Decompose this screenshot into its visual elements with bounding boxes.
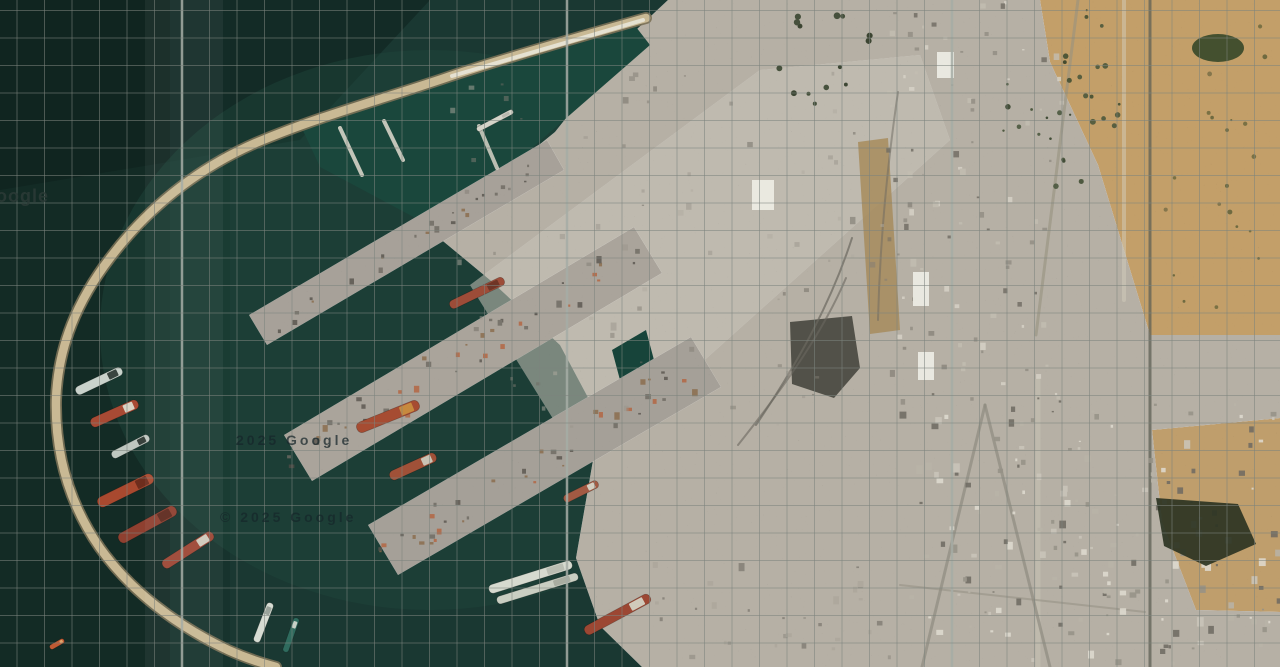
terminal-clutter-block [804, 288, 809, 292]
trees-terminal-dot [844, 83, 848, 87]
terminal-clutter-block [586, 263, 591, 267]
city-blocks-mid-block [953, 151, 959, 157]
watermark-2025-google: 2025 Google [236, 432, 352, 448]
trees-dirt-dot [1235, 225, 1238, 228]
trees-terminal-dot [807, 92, 811, 96]
pier-b-clutter-block [323, 425, 328, 432]
terminal-clutter-block [747, 142, 753, 147]
city-blocks-bottom-block [1040, 551, 1046, 558]
pier-b-clutter-block [635, 249, 640, 254]
pier-a-clutter-block [312, 301, 314, 303]
terminal-clutter-block [480, 316, 483, 320]
city-blocks-bottom-block [1171, 662, 1174, 666]
city-blocks-mid-block [960, 169, 966, 175]
pier-c-clutter-block [640, 379, 645, 384]
terminal-clutter-block [903, 347, 907, 350]
city-blocks-bottom-block [1111, 425, 1113, 428]
trees-top-dot [1115, 112, 1121, 118]
terminal-clutter-block [508, 188, 511, 190]
pier-a-clutter-block [451, 221, 456, 224]
terminal-clutter-block [642, 189, 645, 192]
city-blocks-bottom-block [1075, 552, 1079, 556]
trees-top-dot [1005, 104, 1010, 109]
city-blocks-bottom-block [1188, 412, 1193, 416]
trees-top-dot [1017, 125, 1022, 130]
city-blocks-mid-block [944, 286, 949, 292]
pier-a-clutter-block [524, 181, 526, 183]
city-blocks-bottom-block [1068, 631, 1074, 635]
terminal-clutter-block [730, 406, 736, 410]
terminal-clutter-block [684, 75, 686, 77]
terminal-clutter-south-block [832, 647, 835, 650]
city-blocks-bottom-block [971, 554, 977, 558]
city-blocks-bottom-block [1197, 617, 1204, 626]
trees-top-dot [1112, 123, 1117, 128]
city-blocks-bottom-block [1031, 418, 1035, 422]
city-blocks-bottom-block [1052, 577, 1057, 580]
terminal-clutter-block [624, 406, 629, 411]
pier-c-clutter-block [429, 514, 434, 518]
trees-dirt-dot [1243, 122, 1247, 126]
pier-c-clutter-block [661, 371, 665, 373]
city-blocks-bottom-block [1216, 564, 1218, 566]
terminal-clutter-block [778, 299, 780, 301]
terminal-clutter-block [642, 205, 644, 206]
pier-a-clutter-block [452, 212, 454, 214]
city-blocks-mid-block [971, 141, 973, 143]
terminal-clutter-block [623, 97, 629, 103]
trees-top-dot [1030, 108, 1033, 111]
trees-terminal-dot [840, 14, 845, 19]
city-blocks-mid-block [980, 3, 986, 8]
trees-top-dot [1063, 60, 1067, 64]
terminal-clutter-block [458, 260, 462, 266]
trees-terminal-dot [776, 65, 782, 71]
pier-c-clutter-block [525, 475, 528, 477]
city-blocks-bottom-block [965, 483, 971, 488]
terminal-clutter-block [610, 333, 614, 338]
city-blocks-bottom-block [1108, 562, 1113, 568]
terminal-clutter-block [570, 425, 573, 427]
terminal-clutter-block [642, 287, 647, 291]
terminal-clutter-block [596, 224, 600, 230]
terminal-clutter-block [851, 254, 855, 257]
city-blocks-mid-block [970, 397, 973, 401]
pier-b-clutter-block [465, 344, 467, 346]
city-blocks-bottom-block [1259, 440, 1263, 443]
city-blocks-mid-block [1030, 240, 1034, 244]
terminal-clutter-south-block [782, 617, 785, 619]
terminal-clutter-south-block [859, 598, 863, 600]
terminal-clutter-block [928, 331, 934, 336]
city-blocks-bottom-block [1165, 579, 1169, 583]
city-blocks-mid-block [1045, 365, 1048, 367]
city-blocks-bottom-block [1169, 645, 1171, 648]
city-blocks-mid-block [1022, 325, 1024, 328]
city-blocks-bottom-block [1059, 521, 1066, 529]
trees-dirt-dot [1227, 210, 1232, 215]
city-blocks-bottom-block [1103, 572, 1108, 577]
terminal-clutter-block [469, 86, 475, 90]
city-blocks-bottom-block [1165, 599, 1168, 602]
city-blocks-mid-block [1041, 57, 1046, 62]
city-blocks-bottom-block [1160, 649, 1165, 654]
terminal-clutter-block [802, 170, 805, 173]
trees-top-dot [1049, 137, 1052, 140]
city-blocks-bottom-block [1007, 542, 1013, 550]
city-blocks-bottom-block [1015, 458, 1017, 461]
pier-c-clutter-block [456, 500, 461, 505]
city-blocks-bottom-block [936, 630, 943, 635]
satellite-map-view[interactable]: oogle2025 Google© 2025 Google [0, 0, 1280, 667]
city-blocks-bottom-block [963, 577, 967, 581]
pier-a-clutter-block [465, 213, 469, 217]
pier-a-clutter-block [495, 193, 498, 196]
city-blocks-bottom-block [1250, 617, 1252, 619]
city-blocks-bottom-block [1237, 614, 1240, 617]
city-blocks-mid-block [948, 235, 951, 238]
pier-c-clutter-block [491, 479, 495, 482]
terminal-clutter-block [832, 72, 835, 76]
pier-b-clutter-block [524, 326, 528, 329]
pier-b-clutter-block [596, 256, 601, 263]
terminal-clutter-block [778, 364, 782, 367]
terminal-clutter-block [647, 100, 649, 103]
city-blocks-bottom-block [1268, 621, 1270, 623]
city-blocks-bottom-block [1173, 561, 1179, 569]
city-blocks-mid-block [915, 71, 918, 74]
terminal-clutter-block [794, 242, 799, 247]
city-blocks-bottom-block [1208, 626, 1214, 634]
terminal-clutter-block [474, 327, 479, 331]
trees-top-dot [1067, 78, 1072, 83]
city-blocks-bottom-block [953, 463, 960, 472]
city-blocks-bottom-block [1200, 585, 1206, 592]
pier-a-clutter-block [501, 185, 505, 189]
city-blocks-bottom-block [990, 630, 993, 632]
pier-c-clutter-block [413, 535, 416, 539]
city-blocks-bottom-block [969, 626, 971, 628]
city-blocks-bottom-block [1271, 412, 1277, 417]
building-white-1 [913, 272, 929, 306]
city-blocks-mid-block [1041, 322, 1046, 328]
city-blocks-mid-block [908, 32, 913, 37]
city-blocks-bottom-block [941, 542, 945, 547]
city-blocks-bottom-block [1275, 550, 1280, 557]
pier-b-clutter-block [489, 319, 492, 321]
terminal-clutter-block [553, 371, 557, 375]
city-blocks-bottom-block [1054, 546, 1057, 550]
city-blocks-mid-block [915, 47, 920, 50]
pier-c-clutter-block [562, 465, 564, 467]
pier-b-clutter-block [562, 282, 564, 284]
city-blocks-bottom-block [916, 465, 922, 474]
trees-dirt-dot [1252, 154, 1257, 159]
city-blocks-mid-block [1001, 382, 1006, 385]
city-blocks-mid-block [1006, 260, 1012, 264]
city-blocks-mid-block [1056, 396, 1060, 399]
city-blocks-mid-block [1017, 302, 1021, 307]
pier-c-clutter-block [467, 516, 469, 519]
city-blocks-mid-block [904, 224, 908, 230]
city-blocks-bottom-block [988, 612, 991, 615]
trees-top-dot [1079, 179, 1084, 184]
terminal-clutter-block [884, 279, 887, 281]
pier-c-clutter-block [599, 412, 603, 418]
trees-top-dot [1046, 117, 1049, 120]
terminal-clutter-south-block [662, 597, 664, 599]
pier-a-clutter-block [461, 209, 465, 212]
terminal-clutter-block [828, 260, 830, 262]
city-blocks-bottom-block [937, 478, 944, 483]
city-blocks-mid-block [960, 51, 963, 53]
terminal-clutter-south-block [707, 581, 713, 586]
city-blocks-bottom-block [931, 424, 938, 430]
terminal-clutter-block [471, 158, 476, 162]
city-blocks-bottom-block [996, 608, 1002, 613]
city-blocks-bottom-block [1037, 474, 1042, 480]
terminal-clutter-south-block [660, 617, 663, 621]
terminal-clutter-block [890, 370, 895, 377]
trees-top-dot [1077, 75, 1082, 80]
pier-a-clutter-block [379, 268, 383, 274]
city-blocks-bottom-block [1120, 608, 1126, 615]
city-blocks-mid-block [1057, 77, 1061, 81]
city-blocks-mid-block [893, 12, 897, 14]
terminal-clutter-south-block [775, 644, 778, 647]
city-blocks-mid-block [932, 22, 937, 26]
city-blocks-bottom-block [1019, 446, 1024, 449]
trees-top-dot [1100, 24, 1104, 28]
trees-terminal-dot [834, 12, 841, 19]
trees-dirt-dot [1258, 24, 1262, 28]
city-blocks-bottom-block [1011, 407, 1015, 412]
pier-c-clutter-block [533, 481, 536, 483]
city-blocks-bottom-block [1192, 469, 1196, 474]
pier-b-clutter-block [490, 329, 494, 332]
city-blocks-mid-block [956, 306, 959, 308]
trees-dirt-dot [1183, 300, 1186, 303]
city-blocks-bottom-block [1177, 487, 1183, 493]
city-blocks-bottom-block [1022, 490, 1025, 494]
trees-dirt-dot [1173, 176, 1176, 179]
city-blocks-bottom-block [1017, 465, 1019, 468]
city-blocks-mid-block [980, 212, 984, 218]
city-blocks-mid-block [909, 209, 914, 215]
city-blocks-bottom-block [1151, 472, 1154, 476]
pier-c-clutter-block [614, 412, 619, 419]
trees-dirt-dot [1173, 274, 1175, 276]
city-blocks-bottom-block [1240, 415, 1243, 418]
trees-top-dot [1085, 15, 1089, 19]
pier-a-clutter-block [414, 235, 416, 238]
terminal-clutter-block [691, 189, 693, 191]
trees-terminal-dot [794, 19, 800, 25]
city-blocks-bottom-block [900, 412, 907, 419]
terminal-clutter-block [880, 224, 883, 227]
terminal-clutter-south-block [739, 563, 745, 571]
pier-c-clutter-block [664, 377, 668, 380]
pier-c-clutter-block [429, 534, 435, 538]
pier-c-clutter-block [378, 547, 382, 551]
terminal-clutter-block [853, 132, 856, 135]
trees-top-dot [1118, 103, 1121, 106]
pier-c-clutter-block [434, 539, 437, 542]
trees-dirt-dot [1215, 305, 1219, 309]
terminal-clutter-block [767, 234, 772, 239]
city-blocks-bottom-block [1012, 512, 1015, 515]
city-blocks-bottom-block [1091, 410, 1094, 412]
city-blocks-bottom-block [926, 463, 932, 470]
trees-terminal-dot [795, 14, 801, 20]
city-blocks-bottom-block [934, 472, 939, 478]
city-blocks-bottom-block [1248, 443, 1252, 448]
city-blocks-mid-block [897, 335, 902, 339]
terminal-clutter-block [622, 144, 625, 147]
city-blocks-bottom-block [1249, 426, 1254, 432]
city-blocks-bottom-block [995, 565, 1002, 569]
trees-terminal-dot [823, 85, 829, 91]
pier-c-clutter-block [653, 399, 657, 404]
city-blocks-bottom-block [1262, 609, 1264, 611]
city-blocks-bottom-block [1107, 633, 1110, 635]
terminal-clutter-block [833, 109, 837, 113]
city-blocks-mid-block [958, 343, 962, 347]
city-blocks-bottom-block [968, 591, 970, 593]
city-blocks-bottom-block [1081, 549, 1087, 555]
terminal-clutter-south-block [748, 609, 750, 612]
city-blocks-bottom-block [1167, 481, 1171, 484]
terminal-clutter-south-block [695, 608, 697, 610]
terminal-clutter-south-block [833, 596, 839, 604]
terminal-clutter-block [708, 251, 712, 255]
city-blocks-mid-block [914, 13, 918, 17]
city-blocks-mid-block [1049, 160, 1051, 162]
city-blocks-mid-block [890, 105, 892, 107]
city-blocks-bottom-block [1271, 531, 1278, 537]
terminal-clutter-block [828, 155, 833, 159]
city-blocks-mid-block [962, 362, 965, 366]
city-blocks-bottom-block [1021, 460, 1025, 465]
pier-c-clutter-block [433, 503, 436, 507]
pier-c-clutter-block [419, 541, 424, 544]
city-blocks-bottom-block [1052, 411, 1054, 412]
city-blocks-mid-block [1025, 369, 1028, 371]
pier-c-clutter-block [662, 398, 666, 401]
pier-c-clutter-block [381, 543, 386, 547]
city-blocks-bottom-block [995, 491, 999, 496]
city-blocks-bottom-block [975, 506, 979, 510]
city-blocks-bottom-block [1107, 595, 1111, 598]
pier-a-clutter-block [476, 198, 478, 200]
pier-c-clutter-block [613, 423, 617, 428]
pier-b-clutter-block [361, 404, 365, 408]
city-blocks-bottom-block [998, 469, 1003, 473]
city-blocks-mid-block [1008, 197, 1013, 202]
building-white-4 [752, 180, 774, 210]
city-blocks-bottom-block [1072, 573, 1079, 577]
terminal-clutter-block [450, 108, 455, 114]
pier-c-clutter-block [437, 529, 442, 535]
pier-a-clutter-block [278, 329, 281, 333]
city-blocks-bottom-block [1252, 488, 1254, 490]
city-blocks-bottom-block [1063, 541, 1066, 543]
terminal-clutter-block [653, 86, 657, 91]
city-blocks-bottom-block [1037, 397, 1039, 399]
city-blocks-bottom-block [1075, 558, 1078, 560]
city-blocks-bottom-block [994, 437, 1000, 441]
city-blocks-mid-block [901, 399, 905, 405]
scan-light-band [145, 0, 223, 667]
pier-b-clutter-block [356, 397, 361, 401]
terminal-clutter-block [611, 323, 617, 331]
city-blocks-mid-block [1040, 109, 1042, 111]
trees-top-dot [1057, 110, 1062, 115]
terminal-clutter-south-block [888, 655, 891, 659]
trees-top-dot [1090, 119, 1096, 125]
city-blocks-bottom-block [1103, 588, 1110, 594]
city-blocks-mid-block [910, 259, 916, 267]
city-blocks-mid-block [1034, 219, 1038, 224]
terminal-clutter-block [888, 237, 892, 241]
city-blocks-bottom-block [1051, 520, 1054, 524]
pier-c-clutter-block [444, 520, 447, 522]
terminal-clutter-block [686, 203, 691, 210]
city-blocks-bottom-block [1086, 502, 1089, 507]
pier-b-clutter-block [556, 301, 561, 308]
city-blocks-bottom-block [910, 595, 915, 599]
city-blocks-mid-block [933, 202, 939, 208]
city-blocks-bottom-block [1079, 618, 1083, 622]
terminal-clutter-block [493, 252, 496, 255]
city-blocks-mid-block [993, 51, 997, 55]
trees-top-dot [1083, 93, 1088, 98]
trees-top-dot [1037, 133, 1040, 136]
city-blocks-bottom-block [1164, 645, 1169, 648]
city-blocks-mid-block [903, 218, 907, 222]
pier-c-clutter-block [682, 379, 686, 382]
city-blocks-mid-block [985, 32, 989, 36]
pier-b-clutter-block [398, 390, 402, 394]
satellite-scene: oogle2025 Google© 2025 Google [0, 0, 1280, 667]
terminal-clutter-south-block [655, 601, 659, 604]
city-blocks-bottom-block [1059, 400, 1061, 402]
terminal-clutter-south-block [877, 621, 883, 626]
pier-b-clutter-block [414, 386, 419, 393]
trees-top-dot [1002, 129, 1004, 131]
city-blocks-mid-block [922, 26, 924, 29]
terminal-clutter-south-block [689, 655, 695, 659]
city-blocks-bottom-block [1161, 618, 1163, 621]
terminal-clutter-south-block [712, 602, 717, 609]
terminal-clutter-south-block [818, 623, 822, 626]
city-blocks-bottom-block [1079, 441, 1081, 442]
city-blocks-bottom-block [1078, 447, 1081, 450]
trees-dirt-dot [1164, 208, 1168, 212]
terminal-clutter-block [542, 406, 546, 410]
pier-b-clutter-block [519, 322, 522, 326]
city-blocks-bottom-block [1115, 659, 1121, 665]
terminal-clutter-block [584, 136, 588, 139]
city-blocks-bottom-block [1151, 479, 1156, 483]
watermark-copyright-2025-google: © 2025 Google [220, 509, 356, 525]
trees-terminal-dot [866, 38, 872, 44]
building-white-2 [918, 352, 934, 380]
terminal-clutter-south-block [835, 638, 840, 641]
city-blocks-mid-block [991, 314, 997, 319]
city-blocks-mid-block [903, 75, 905, 78]
city-blocks-bottom-block [984, 611, 986, 613]
